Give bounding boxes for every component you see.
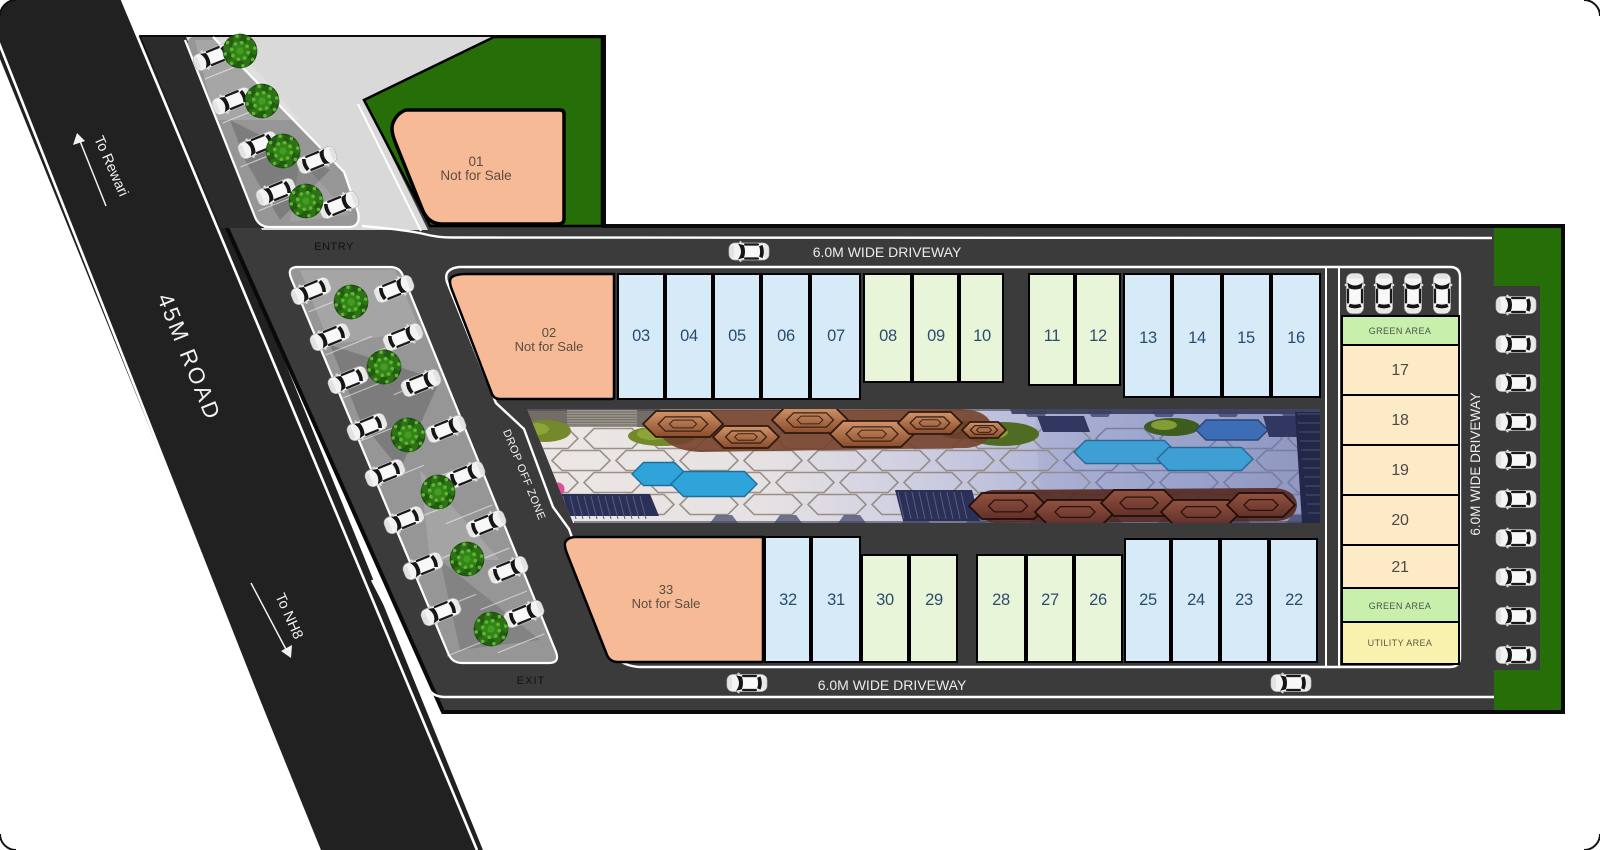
svg-text:25: 25 [1139, 591, 1157, 609]
svg-text:30: 30 [876, 591, 894, 609]
svg-text:31: 31 [827, 591, 845, 609]
svg-text:6.0M WIDE DRIVEWAY: 6.0M WIDE DRIVEWAY [818, 677, 967, 693]
svg-text:23: 23 [1235, 591, 1253, 609]
svg-text:02: 02 [542, 325, 556, 340]
svg-text:07: 07 [827, 327, 845, 345]
svg-text:14: 14 [1188, 329, 1206, 347]
svg-text:27: 27 [1041, 591, 1059, 609]
svg-text:18: 18 [1391, 412, 1409, 429]
svg-text:UTILITY AREA: UTILITY AREA [1368, 638, 1433, 648]
svg-text:Not for Sale: Not for Sale [440, 168, 511, 183]
svg-text:22: 22 [1285, 591, 1303, 609]
svg-text:16: 16 [1287, 329, 1305, 347]
svg-text:33: 33 [659, 582, 673, 597]
svg-text:6.0M WIDE DRIVEWAY: 6.0M WIDE DRIVEWAY [813, 244, 962, 260]
svg-text:19: 19 [1391, 462, 1409, 479]
svg-text:ENTRY: ENTRY [314, 241, 354, 253]
svg-text:09: 09 [927, 327, 945, 345]
svg-text:10: 10 [973, 327, 991, 345]
svg-text:Not for Sale: Not for Sale [632, 596, 701, 611]
svg-text:26: 26 [1089, 591, 1107, 609]
svg-text:Not for Sale: Not for Sale [515, 339, 584, 354]
svg-text:32: 32 [779, 591, 797, 609]
svg-text:01: 01 [468, 154, 483, 169]
svg-text:17: 17 [1391, 362, 1409, 379]
svg-text:EXIT: EXIT [517, 675, 545, 687]
svg-text:24: 24 [1187, 591, 1205, 609]
svg-text:11: 11 [1044, 327, 1061, 345]
svg-text:28: 28 [992, 591, 1010, 609]
svg-text:06: 06 [777, 327, 795, 345]
svg-text:GREEN AREA: GREEN AREA [1369, 601, 1432, 611]
svg-text:15: 15 [1237, 329, 1255, 347]
svg-text:05: 05 [728, 327, 746, 345]
svg-text:03: 03 [632, 327, 650, 345]
svg-text:12: 12 [1089, 327, 1107, 345]
svg-text:29: 29 [925, 591, 943, 609]
svg-text:08: 08 [879, 327, 897, 345]
svg-text:GREEN AREA: GREEN AREA [1369, 326, 1432, 336]
svg-text:13: 13 [1139, 329, 1157, 347]
svg-text:04: 04 [680, 327, 698, 345]
svg-text:20: 20 [1391, 512, 1409, 529]
svg-text:6.0M WIDE DRIVEWAY: 6.0M WIDE DRIVEWAY [1468, 392, 1483, 535]
svg-text:21: 21 [1391, 559, 1409, 576]
